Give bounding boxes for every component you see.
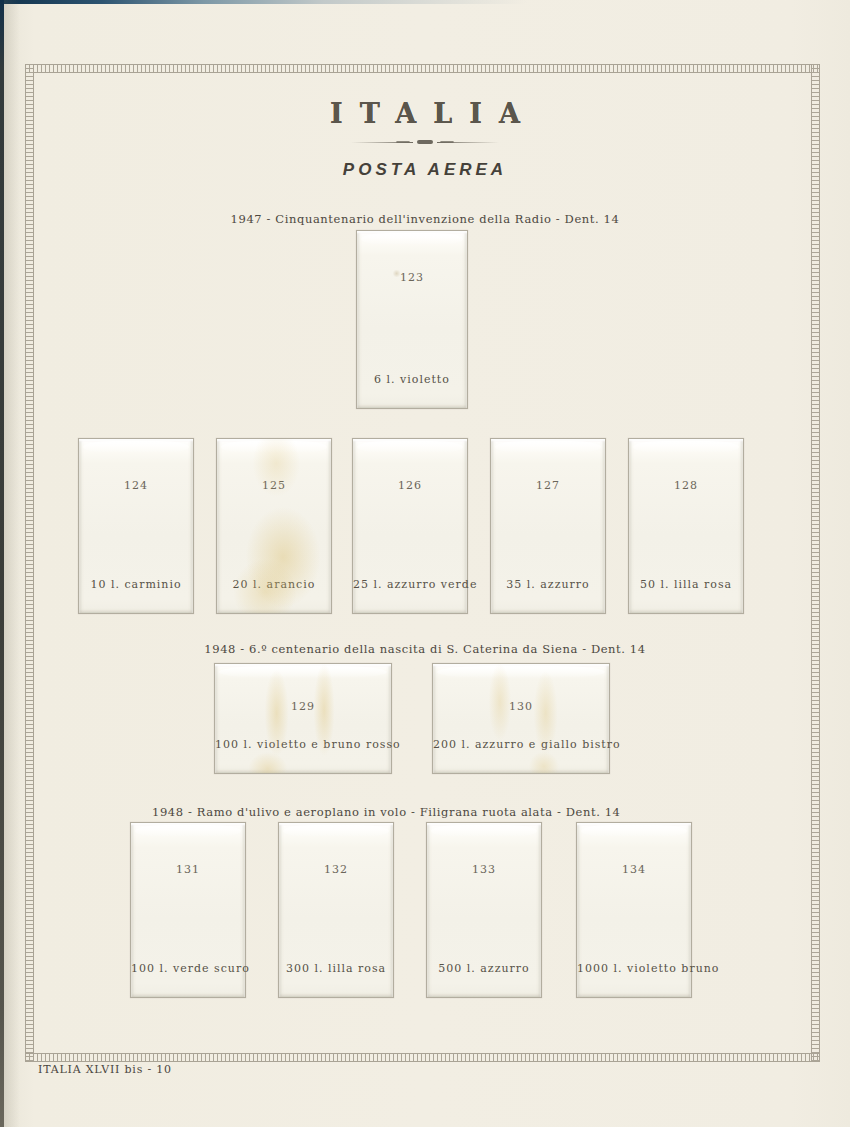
- stamp-slot-130: 130 200 l. azzurro e giallo bistro: [432, 663, 610, 774]
- stamp-caption: 300 l. lilla rosa: [279, 962, 393, 975]
- stamp-caption: 10 l. carminio: [79, 578, 193, 591]
- flourish-line-left: [351, 142, 413, 143]
- stamp-slot-128: 128 50 l. lilla rosa: [628, 438, 744, 614]
- border-bottom: [25, 1053, 820, 1062]
- stamp-caption: 100 l. verde scuro: [131, 962, 245, 975]
- stamp-number: 134: [577, 863, 691, 876]
- scan-edge-top: [0, 0, 850, 4]
- stamp-caption: 35 l. azzurro: [491, 578, 605, 591]
- stamp-caption: 20 l. arancio: [217, 578, 331, 591]
- stamp-number: 130: [433, 700, 609, 713]
- stamp-slot-131: 131 100 l. verde scuro: [130, 822, 246, 998]
- section-heading-radio: 1947 - Cinquantenario dell'invenzione de…: [0, 212, 850, 226]
- stamp-number: 123: [357, 271, 467, 284]
- section-heading-caterina: 1948 - 6.º centenario della nascita di S…: [0, 642, 850, 656]
- stamp-slot-123: 123 6 l. violetto: [356, 230, 468, 409]
- title-flourish: [0, 140, 850, 144]
- stamp-caption: 100 l. violetto e bruno rosso: [215, 738, 391, 751]
- stamp-caption: 200 l. azzurro e giallo bistro: [433, 738, 609, 751]
- stamp-number: 126: [353, 479, 467, 492]
- page-footer-label: ITALIA XLVII bis - 10: [38, 1063, 172, 1076]
- stamp-slot-134: 134 1000 l. violetto bruno: [576, 822, 692, 998]
- section-heading-ramo-ulivo: 1948 - Ramo d'ulivo e aeroplano in volo …: [152, 805, 621, 819]
- flourish-line-right: [437, 142, 499, 143]
- border-top: [25, 64, 820, 73]
- stamp-number: 125: [217, 479, 331, 492]
- stamp-caption: 25 l. azzurro verde: [353, 578, 467, 591]
- stamp-slot-129: 129 100 l. violetto e bruno rosso: [214, 663, 392, 774]
- stamp-caption: 50 l. lilla rosa: [629, 578, 743, 591]
- stamp-number: 128: [629, 479, 743, 492]
- stamp-slot-127: 127 35 l. azzurro: [490, 438, 606, 614]
- flourish-gem: [417, 140, 433, 144]
- stamp-caption: 500 l. azzurro: [427, 962, 541, 975]
- stamp-slot-125: 125 20 l. arancio: [216, 438, 332, 614]
- stamp-number: 127: [491, 479, 605, 492]
- stamp-caption: 1000 l. violetto bruno: [577, 962, 691, 975]
- stamp-number: 124: [79, 479, 193, 492]
- stamp-slot-126: 126 25 l. azzurro verde: [352, 438, 468, 614]
- stamp-caption: 6 l. violetto: [357, 373, 467, 386]
- stamp-number: 131: [131, 863, 245, 876]
- stamp-number: 132: [279, 863, 393, 876]
- stamp-slot-132: 132 300 l. lilla rosa: [278, 822, 394, 998]
- stamp-slot-124: 124 10 l. carminio: [78, 438, 194, 614]
- stamp-slot-133: 133 500 l. azzurro: [426, 822, 542, 998]
- page-subtitle: POSTA AEREA: [0, 160, 850, 180]
- stamp-number: 129: [215, 700, 391, 713]
- page-title: ITALIA: [0, 98, 850, 129]
- stamp-number: 133: [427, 863, 541, 876]
